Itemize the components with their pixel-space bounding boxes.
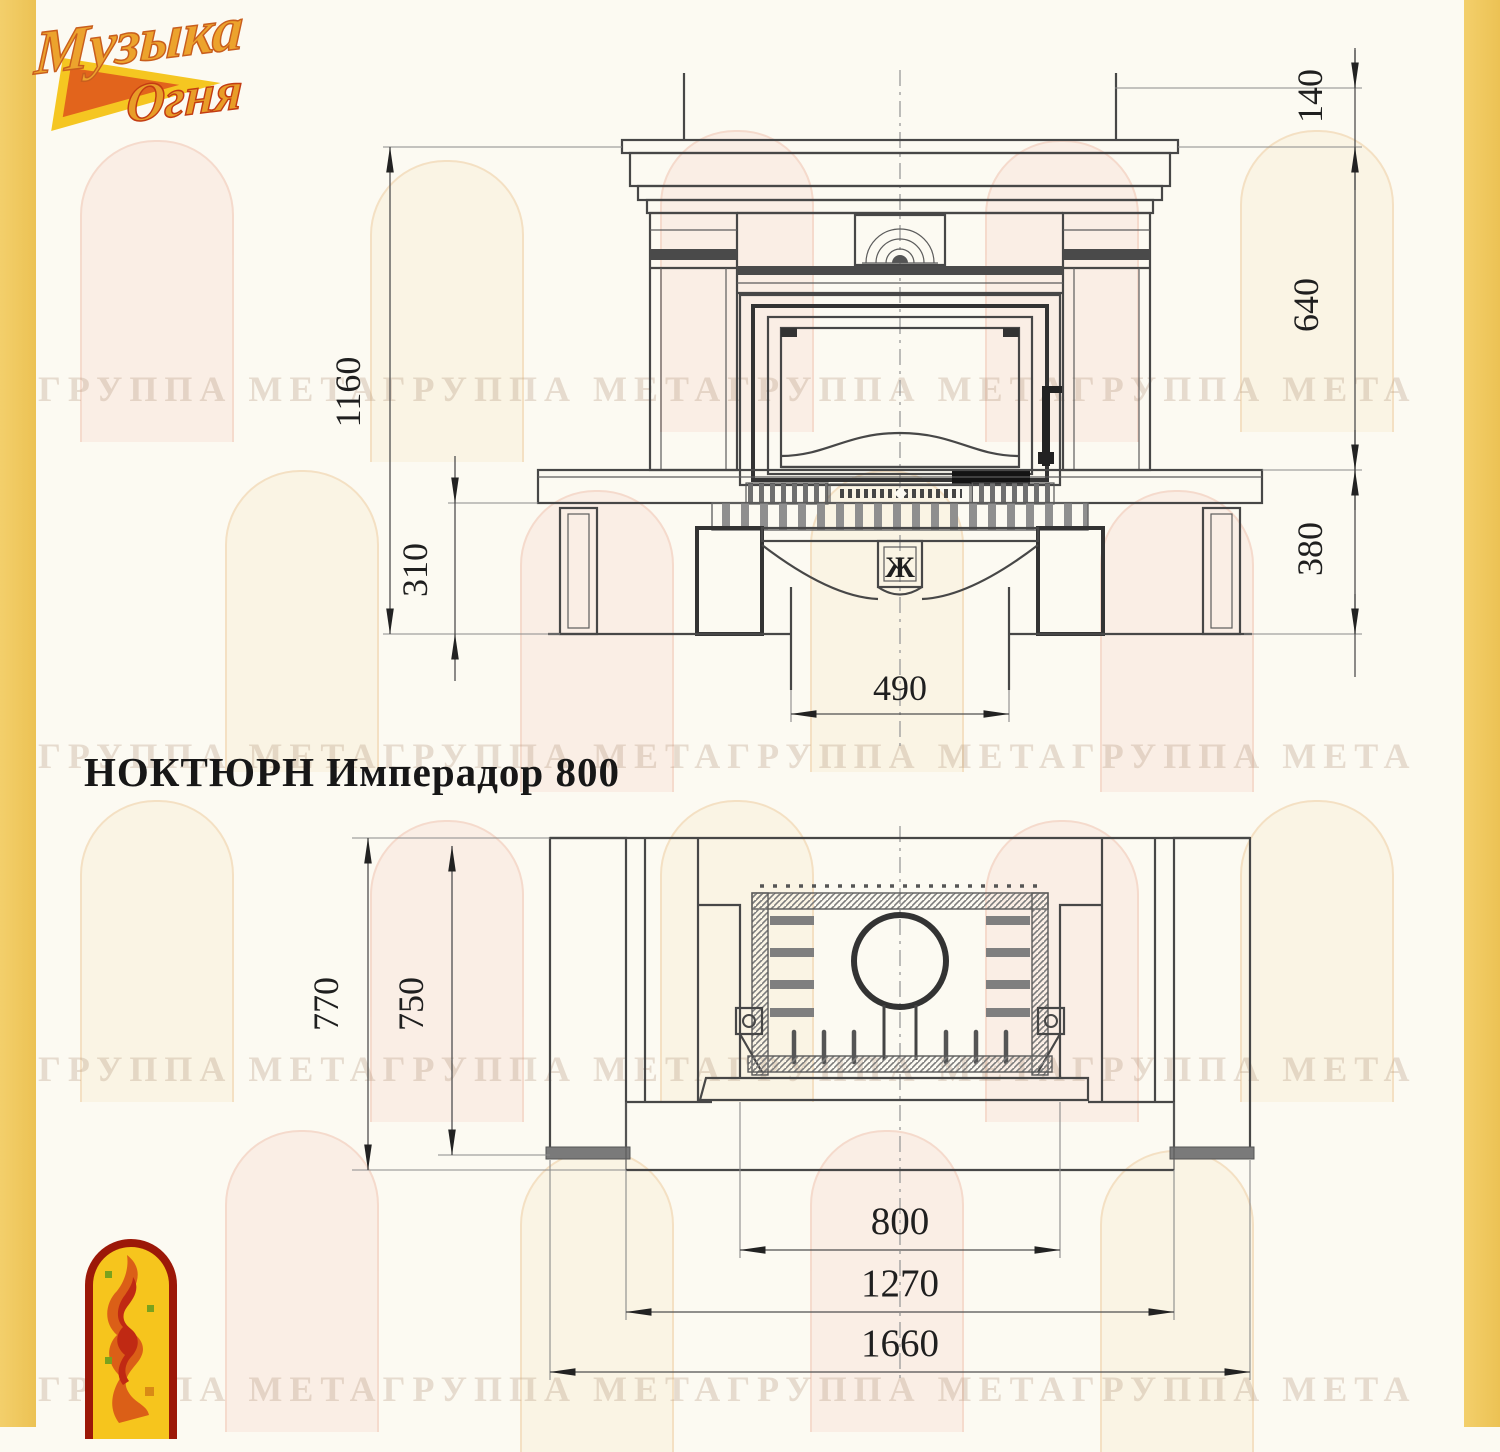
- dim-body-width: 1270: [861, 1262, 939, 1305]
- right-wall: [1032, 893, 1048, 1075]
- dim-overall-width: 1660: [861, 1322, 939, 1365]
- firebox-door: [740, 295, 1062, 485]
- pilaster-left: [650, 213, 737, 470]
- hearth-plate: [700, 1078, 1088, 1100]
- dim-firebox-width: 800: [871, 1200, 930, 1243]
- flame-art: [93, 1247, 169, 1432]
- dim-column-width: 490: [873, 668, 927, 708]
- dim-overall-depth: 770: [306, 977, 346, 1031]
- pilaster-right: [1063, 213, 1150, 470]
- dim-overall-height: 1160: [328, 357, 368, 428]
- dim-shelf-height: 140: [1290, 69, 1330, 123]
- emblem-glyph: Ж: [885, 551, 915, 584]
- base-right: [1038, 508, 1240, 634]
- dim-inner-depth: 750: [391, 977, 431, 1031]
- left-wall: [752, 893, 768, 1075]
- front-sill: [748, 1056, 1052, 1072]
- firebox-insert-top-view: [700, 886, 1088, 1100]
- back-wall: [752, 893, 1048, 909]
- plan-view-drawing: 770 750 800 1270 1660: [306, 826, 1254, 1382]
- side-wing-right: [1170, 838, 1254, 1159]
- baluster-fringe: [712, 503, 1088, 530]
- dim-opening-height: 640: [1286, 278, 1326, 332]
- dim-plinth-height: 310: [395, 543, 435, 597]
- base-left: [560, 508, 762, 634]
- dim-base-height: 380: [1290, 522, 1330, 576]
- side-wing-left: [546, 838, 630, 1159]
- flame-emblem: [85, 1239, 177, 1439]
- front-view-dimensions: 1160 310 140 640 380 490: [328, 48, 1362, 722]
- catalog-page: { "page": { "stripe_color": "#f0c85e", "…: [0, 0, 1500, 1427]
- technical-drawing: Ж 1160 310 140: [0, 0, 1500, 1427]
- door-handle: [1038, 386, 1062, 466]
- front-view-drawing: Ж 1160 310 140: [328, 48, 1362, 748]
